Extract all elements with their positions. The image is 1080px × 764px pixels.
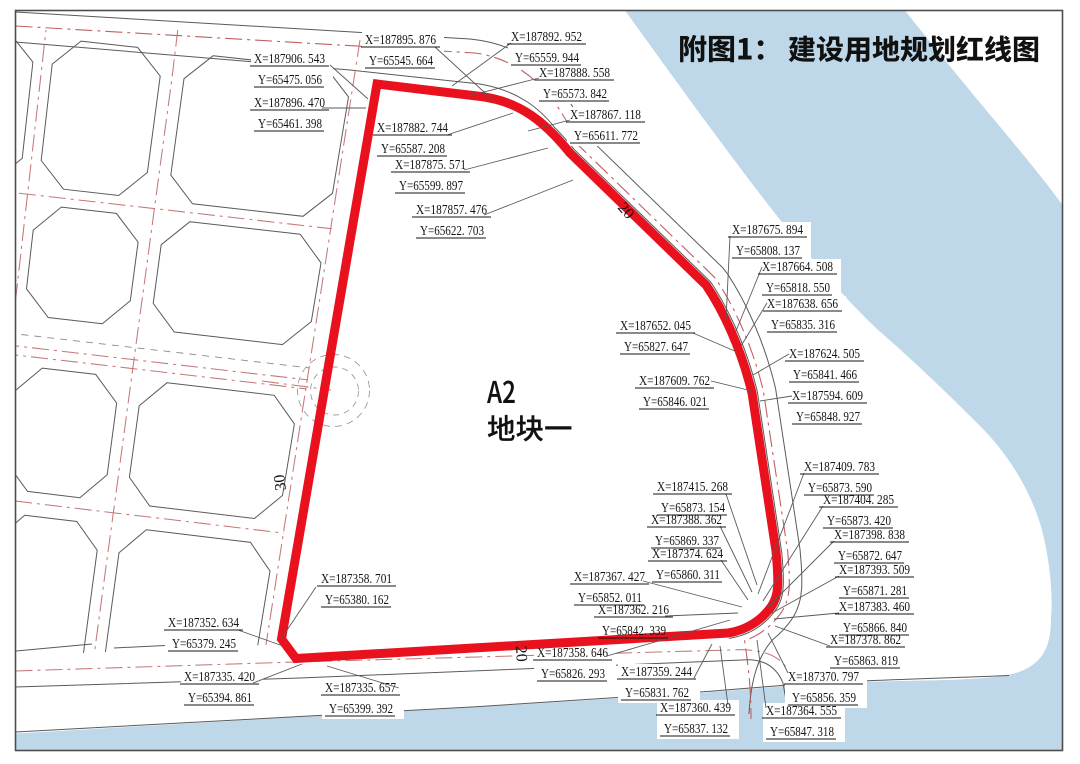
svg-text:X=187360. 439: X=187360. 439 <box>660 700 731 715</box>
svg-text:X=187398. 838: X=187398. 838 <box>834 527 905 542</box>
svg-text:Y=65863. 819: Y=65863. 819 <box>834 653 898 668</box>
svg-text:Y=65808. 137: Y=65808. 137 <box>736 243 800 258</box>
svg-text:X=187624. 505: X=187624. 505 <box>789 346 860 361</box>
svg-text:Y=65380. 162: Y=65380. 162 <box>325 592 389 607</box>
svg-text:X=187352. 634: X=187352. 634 <box>168 615 239 630</box>
svg-text:X=187335. 420: X=187335. 420 <box>184 669 255 684</box>
svg-text:X=187609. 762: X=187609. 762 <box>639 373 710 388</box>
svg-text:X=187906. 543: X=187906. 543 <box>254 51 325 66</box>
svg-text:X=187383. 460: X=187383. 460 <box>839 599 910 614</box>
svg-text:Y=65841. 466: Y=65841. 466 <box>793 367 857 382</box>
svg-text:X=187388. 362: X=187388. 362 <box>651 512 722 527</box>
svg-text:X=187378. 862: X=187378. 862 <box>830 632 901 647</box>
svg-text:Y=65872. 647: Y=65872. 647 <box>838 548 902 563</box>
svg-text:30: 30 <box>271 474 290 492</box>
svg-text:Y=65846. 021: Y=65846. 021 <box>643 394 707 409</box>
svg-text:X=187675. 894: X=187675. 894 <box>732 222 803 237</box>
svg-text:X=187875. 571: X=187875. 571 <box>395 157 466 172</box>
svg-text:X=187652. 045: X=187652. 045 <box>620 318 691 333</box>
svg-text:X=187882. 744: X=187882. 744 <box>377 120 448 135</box>
svg-text:X=187404. 285: X=187404. 285 <box>823 492 894 507</box>
svg-text:Y=65848. 927: Y=65848. 927 <box>796 409 860 424</box>
svg-text:Y=65873. 420: Y=65873. 420 <box>827 513 891 528</box>
svg-text:X=187895. 876: X=187895. 876 <box>365 32 436 47</box>
svg-text:Y=65461. 398: Y=65461. 398 <box>258 116 322 131</box>
svg-text:X=187664. 508: X=187664. 508 <box>762 259 833 274</box>
svg-text:X=187364. 555: X=187364. 555 <box>766 703 837 718</box>
svg-text:X=187358. 701: X=187358. 701 <box>321 571 392 586</box>
svg-text:Y=65475. 056: Y=65475. 056 <box>258 72 322 87</box>
svg-text:X=187359. 244: X=187359. 244 <box>621 664 692 679</box>
svg-text:Y=65587. 208: Y=65587. 208 <box>381 141 445 156</box>
svg-text:X=187857. 476: X=187857. 476 <box>416 202 487 217</box>
svg-text:Y=65611. 772: Y=65611. 772 <box>574 128 638 143</box>
svg-text:X=187867. 118: X=187867. 118 <box>570 107 641 122</box>
svg-text:X=187638. 656: X=187638. 656 <box>767 296 838 311</box>
svg-text:Y=65399. 392: Y=65399. 392 <box>329 701 393 716</box>
svg-text:Y=65871. 281: Y=65871. 281 <box>843 583 907 598</box>
svg-text:Y=65847. 318: Y=65847. 318 <box>770 724 834 739</box>
svg-text:X=187335. 657: X=187335. 657 <box>325 680 396 695</box>
svg-text:Y=65827. 647: Y=65827. 647 <box>624 339 688 354</box>
svg-text:Y=65818. 550: Y=65818. 550 <box>766 280 830 295</box>
svg-text:Y=65622. 703: Y=65622. 703 <box>420 223 484 238</box>
svg-text:Y=65831. 762: Y=65831. 762 <box>625 685 689 700</box>
svg-text:X=187594. 609: X=187594. 609 <box>792 388 863 403</box>
svg-text:X=187374. 624: X=187374. 624 <box>652 546 723 561</box>
svg-text:Y=65826. 293: Y=65826. 293 <box>541 666 605 681</box>
svg-text:Y=65599. 897: Y=65599. 897 <box>399 178 463 193</box>
svg-text:X=187415. 268: X=187415. 268 <box>657 479 728 494</box>
svg-text:Y=65842. 339: Y=65842. 339 <box>602 623 666 638</box>
svg-text:X=187888. 558: X=187888. 558 <box>539 65 610 80</box>
svg-text:X=187393. 509: X=187393. 509 <box>839 562 910 577</box>
svg-text:X=187358. 646: X=187358. 646 <box>537 645 608 660</box>
svg-text:Y=65559. 944: Y=65559. 944 <box>515 50 579 65</box>
svg-text:X=187892. 952: X=187892. 952 <box>511 29 582 44</box>
svg-text:Y=65860. 311: Y=65860. 311 <box>656 567 720 582</box>
svg-text:Y=65545. 664: Y=65545. 664 <box>369 53 433 68</box>
svg-text:20: 20 <box>512 645 530 662</box>
svg-text:Y=65573. 842: Y=65573. 842 <box>543 86 607 101</box>
svg-text:Y=65835. 316: Y=65835. 316 <box>771 317 835 332</box>
svg-text:Y=65394. 861: Y=65394. 861 <box>188 690 252 705</box>
svg-text:Y=65837. 132: Y=65837. 132 <box>664 721 728 736</box>
svg-text:Y=65379. 245: Y=65379. 245 <box>172 636 236 651</box>
svg-text:X=187362. 216: X=187362. 216 <box>598 602 669 617</box>
svg-text:X=187896. 470: X=187896. 470 <box>254 95 325 110</box>
svg-text:X=187370. 797: X=187370. 797 <box>788 669 859 684</box>
svg-text:X=187367. 427: X=187367. 427 <box>574 569 645 584</box>
svg-text:X=187409. 783: X=187409. 783 <box>804 459 875 474</box>
